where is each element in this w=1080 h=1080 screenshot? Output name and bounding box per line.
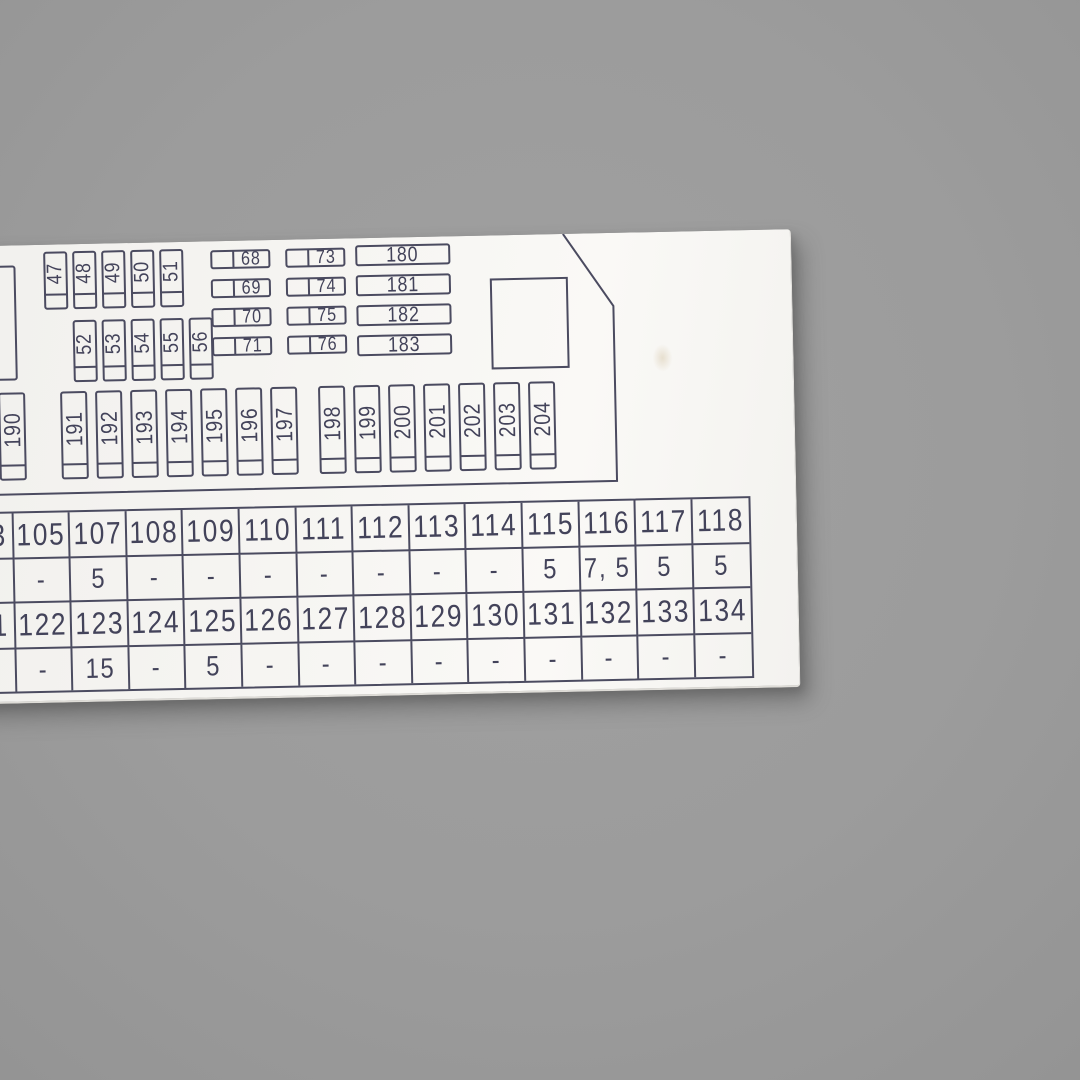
fuse-number-text: 182 [388, 302, 421, 327]
fuse-divider [238, 459, 263, 462]
fuse-number-cell: 122 [15, 602, 73, 649]
fuse-number-label: 69 [235, 280, 269, 296]
fuse-divider [162, 364, 184, 366]
fuse-number-label: 182 [358, 305, 449, 324]
cell-text: 116 [583, 505, 631, 542]
fuse-number-label: 48 [74, 253, 95, 293]
fuse-number-text: 70 [242, 306, 262, 328]
cell-text: 5 [543, 553, 559, 585]
cell-text: - [206, 560, 216, 592]
fuse-divider [104, 365, 126, 367]
fuse-number-text: 71 [243, 335, 263, 357]
cell-text: - [37, 564, 47, 596]
fuse-number-text: 203 [493, 401, 521, 437]
fuse-divider [321, 458, 346, 461]
fuse-number-text: 49 [101, 261, 125, 283]
fuse-number-text: 200 [388, 403, 416, 439]
fuse-number-label: 49 [103, 252, 124, 292]
fuse-box-50: 50 [130, 250, 155, 308]
fuse-number-label: 203 [495, 384, 519, 454]
fuse-number-cell: 118 [692, 498, 750, 545]
amperage-cell: - [184, 555, 242, 600]
fuse-number-text: 48 [72, 262, 96, 284]
fuse-divider [273, 459, 298, 462]
fuse-number-cell: 105 [13, 512, 71, 559]
cell-text: 111 [301, 511, 347, 548]
fuse-number-label: 73 [309, 250, 343, 266]
fuse-number-text: 195 [200, 407, 228, 443]
amperage-table: 3105107108109110111112113114115116117118… [0, 496, 755, 695]
amperage-cell: - [297, 552, 355, 597]
fuse-number-label: 55 [162, 320, 183, 364]
fuse-box-191: 191 [60, 391, 89, 480]
fuse-number-text: 68 [241, 248, 261, 270]
amperage-cell: - [240, 554, 298, 599]
cell-text: 128 [357, 599, 407, 636]
cell-text: 125 [188, 603, 238, 640]
amperage-cell: - [356, 641, 413, 684]
amperage-cell: 5 [637, 545, 695, 590]
fuse-number-cell: 112 [353, 505, 411, 552]
fuse-number-cell: 3 [0, 514, 14, 561]
cell-text: 109 [186, 513, 236, 550]
fuse-divider [45, 293, 67, 295]
fuse-number-label: 195 [202, 390, 226, 460]
fuse-box-55: 55 [160, 318, 185, 380]
cell-text: 127 [301, 600, 351, 637]
fuse-number-label: 183 [359, 335, 450, 354]
cell-text: 117 [639, 503, 687, 540]
cell-text: 132 [584, 595, 634, 632]
fuse-number-cell: 108 [126, 510, 184, 557]
cell-text: - [152, 651, 162, 683]
fuse-number-cell: 132 [581, 590, 639, 637]
fuse-box-47: 47 [43, 251, 68, 309]
cell-text: - [604, 642, 614, 674]
fuse-number-text: 76 [318, 333, 338, 355]
amperage-cell: - [354, 551, 412, 596]
fuse-box-70: 70 [211, 307, 271, 327]
fuse-number-text: 47 [43, 263, 67, 285]
fuse-number-label: 47 [45, 253, 66, 293]
amperage-cell: - [129, 646, 186, 689]
fuse-box-199: 199 [353, 385, 382, 474]
fuse-number-text: 190 [0, 412, 26, 448]
cell-text: 1 [0, 608, 9, 644]
fuse-number-text: 204 [528, 401, 556, 437]
fuse-divider [133, 365, 155, 367]
fuse-number-cell: 123 [72, 601, 130, 648]
fuse-box-192: 192 [95, 390, 124, 479]
cell-text: 7, 5 [584, 552, 631, 585]
fuse-number-text: 193 [130, 409, 158, 445]
fuse-number-text: 201 [423, 403, 451, 439]
fuse-number-text: 196 [235, 407, 263, 443]
fuse-divider [98, 462, 123, 465]
fuse-number-cell: 107 [70, 511, 128, 558]
fuse-divider [495, 454, 520, 457]
fuse-number-text: 55 [160, 331, 184, 353]
cell-text: 5 [656, 551, 672, 583]
fuse-box-76: 76 [287, 334, 347, 354]
fuse-number-label: 190 [0, 394, 24, 464]
cell-text: 129 [414, 598, 464, 635]
fuse-number-text: 73 [316, 246, 336, 268]
fuse-divider [530, 453, 555, 456]
fuse-diagram-area: 4748495051525354555668697071737475761801… [0, 229, 790, 247]
fuse-number-label: 68 [234, 251, 268, 267]
fuse-number-text: 54 [131, 332, 155, 354]
cell-text: - [491, 644, 501, 676]
cell-text: 118 [697, 502, 745, 539]
fuse-number-cell: 129 [411, 594, 469, 641]
fuse-box-182: 182 [356, 303, 451, 326]
fuse-number-cell: 1 [0, 604, 16, 651]
fuse-box-52: 52 [73, 320, 98, 382]
fuse-number-cell: 116 [579, 500, 637, 547]
fuse-number-text: 199 [353, 404, 381, 440]
amperage-cell: - [412, 640, 469, 683]
cell-text: 124 [131, 604, 181, 641]
amperage-cell: - [410, 550, 468, 595]
fuse-divider [133, 461, 158, 464]
fuse-number-label: 52 [75, 322, 96, 366]
cell-text: - [719, 640, 729, 672]
amperage-cell: - [299, 642, 356, 685]
cell-text: 115 [526, 506, 574, 543]
amperage-cell: 7, 5 [580, 546, 638, 591]
fuse-number-text: 191 [60, 410, 88, 446]
fuse-divider [460, 455, 485, 458]
fuse-box-75: 75 [286, 306, 346, 326]
fuse-box-73: 73 [285, 248, 345, 268]
cell-text: 5 [714, 550, 730, 582]
fuse-number-text: 50 [130, 261, 154, 283]
fuse-number-label: 50 [132, 252, 153, 292]
fuse-box-193: 193 [130, 389, 159, 478]
fuse-number-cell: 111 [296, 506, 354, 553]
fuse-box-51: 51 [159, 249, 184, 307]
amperage-cell: - [638, 635, 695, 678]
cell-text: - [378, 647, 388, 679]
fuse-divider [161, 291, 183, 293]
fuse-number-label: 193 [132, 392, 156, 462]
cell-text: - [265, 649, 275, 681]
fuse-box-56: 56 [189, 317, 214, 379]
cell-text: 5 [206, 650, 222, 682]
cell-text: 123 [75, 605, 125, 642]
cell-text: 133 [640, 593, 690, 630]
cell-text: 112 [357, 509, 405, 546]
fuse-box-180: 180 [355, 243, 450, 266]
cell-text: - [150, 561, 160, 593]
cell-text: - [489, 554, 499, 586]
cell-text: - [433, 556, 443, 588]
cell-text: - [322, 648, 332, 680]
cell-text: 126 [244, 602, 294, 639]
cell-text: 107 [73, 515, 123, 552]
fuse-number-label: 74 [310, 279, 344, 295]
fuse-number-cell: 133 [637, 589, 695, 636]
cell-text: 3 [0, 518, 8, 554]
fuse-divider [191, 363, 213, 365]
fuse-number-label: 181 [358, 275, 449, 294]
fuse-divider [103, 292, 125, 294]
fuse-number-label: 192 [97, 392, 121, 462]
partial-fuse-box-cut-left [0, 265, 18, 381]
fuse-divider [74, 293, 96, 295]
fuse-box-203: 203 [493, 382, 522, 471]
cell-text: 122 [18, 606, 68, 643]
fuse-box-54: 54 [131, 319, 156, 381]
cell-text: - [435, 646, 445, 678]
fuse-number-text: 181 [387, 272, 420, 297]
fuse-divider [75, 366, 97, 368]
fuse-number-label: 75 [310, 308, 344, 324]
fuse-number-label: 199 [355, 387, 379, 457]
fuse-number-text: 53 [102, 332, 126, 354]
cell-text: 134 [698, 592, 748, 629]
fuse-number-label: 200 [390, 386, 414, 456]
fuse-box-74: 74 [286, 277, 346, 297]
fuse-number-label: 202 [460, 385, 484, 455]
fuse-divider [355, 457, 380, 460]
fuse-number-text: 74 [317, 275, 337, 297]
cell-text: 105 [16, 516, 66, 553]
cell-text: - [320, 558, 330, 590]
fuse-divider [1, 464, 26, 467]
cell-text: - [376, 557, 386, 589]
cell-text: - [39, 654, 49, 686]
fuse-card: 4748495051525354555668697071737475761801… [0, 229, 800, 705]
fuse-box-49: 49 [101, 250, 126, 308]
fuse-box-181: 181 [356, 273, 451, 296]
amperage-cell: - [469, 639, 526, 682]
fuse-box-196: 196 [235, 387, 264, 476]
fuse-number-label: 194 [167, 391, 191, 461]
fuse-number-cell: 110 [240, 508, 298, 555]
fuse-number-label: 56 [191, 319, 212, 363]
fuse-number-label: 196 [237, 389, 261, 459]
fuse-box-201: 201 [423, 383, 452, 472]
fuse-box-183: 183 [357, 333, 452, 356]
fuse-number-text: 75 [317, 304, 337, 326]
fuse-number-label: 197 [272, 389, 296, 459]
fuse-divider [63, 463, 88, 466]
fuse-box-198: 198 [318, 386, 347, 475]
cell-text: 15 [85, 652, 116, 685]
fuse-number-text: 197 [270, 406, 298, 442]
fuse-number-label: 204 [530, 383, 554, 453]
fuse-number-cell: 128 [355, 595, 413, 642]
fuse-divider [425, 455, 450, 458]
amperage-cell: - [14, 558, 72, 603]
amperage-cell: - [467, 549, 525, 594]
fuse-box-200: 200 [388, 384, 417, 473]
cell-text: - [263, 559, 273, 591]
fuse-divider [132, 292, 154, 294]
photo-stage: 4748495051525354555668697071737475761801… [0, 0, 1080, 1080]
amperage-cell: 5 [693, 544, 751, 589]
fuse-number-label: 53 [104, 321, 125, 365]
fuse-box-204: 204 [528, 381, 557, 470]
amperage-cell: 5 [71, 557, 129, 602]
fuse-divider [390, 456, 415, 459]
amperage-cell [0, 649, 17, 692]
fuse-number-cell: 130 [468, 593, 526, 640]
fuse-number-label: 71 [236, 338, 270, 354]
amperage-cell: - [16, 648, 73, 691]
fuse-number-text: 69 [242, 277, 262, 299]
cell-text: 5 [91, 563, 107, 595]
fuse-number-cell: 127 [298, 596, 356, 643]
fuse-number-text: 202 [458, 402, 486, 438]
cell-text: 113 [413, 508, 461, 545]
fuse-number-cell: 114 [466, 503, 524, 550]
fuse-number-label: 198 [320, 388, 344, 458]
amperage-cell: 5 [523, 548, 581, 593]
amperage-cell: - [127, 556, 185, 601]
fuse-number-label: 201 [425, 385, 449, 455]
amperage-cell: - [582, 636, 639, 679]
cell-text: 131 [527, 596, 577, 633]
fuse-number-cell: 115 [522, 502, 580, 549]
fuse-box-69: 69 [211, 278, 271, 298]
cell-text: 114 [470, 507, 518, 544]
fuse-box-197: 197 [270, 387, 299, 476]
fuse-number-label: 54 [133, 321, 154, 365]
fuse-number-label: 51 [161, 251, 182, 291]
fuse-divider [203, 460, 228, 463]
fuse-number-text: 52 [73, 333, 97, 355]
fuse-number-text: 198 [318, 405, 346, 441]
fuse-number-text: 194 [165, 408, 193, 444]
fuse-number-cell: 126 [241, 598, 299, 645]
fuse-number-label: 70 [235, 309, 269, 325]
fuse-number-text: 56 [189, 331, 213, 353]
fuse-box-195: 195 [200, 388, 229, 477]
fuse-number-cell: 109 [183, 509, 241, 556]
fuse-number-cell: 131 [524, 592, 582, 639]
cell-text: 108 [129, 514, 179, 551]
fuse-number-text: 51 [159, 260, 183, 282]
fuse-number-cell: 124 [128, 600, 186, 647]
amperage-cell: - [525, 638, 582, 681]
fuse-number-cell: 117 [636, 499, 694, 546]
amperage-cell: 15 [73, 647, 130, 690]
fuse-box-71: 71 [212, 336, 272, 356]
fuse-number-text: 180 [386, 242, 419, 267]
fuse-box-202: 202 [458, 383, 487, 472]
fuse-box-53: 53 [102, 319, 127, 381]
fuse-box-68: 68 [210, 249, 270, 269]
cell-text: 110 [243, 512, 291, 549]
relay-square-box [490, 277, 570, 370]
fuse-divider [168, 461, 193, 464]
fuse-number-cell: 113 [409, 504, 467, 551]
cell-text: - [548, 643, 558, 675]
stain-mark [652, 344, 673, 372]
amperage-cell: 5 [186, 645, 243, 688]
fuse-number-text: 183 [388, 332, 421, 357]
amperage-cell: - [695, 634, 752, 677]
fuse-box-48: 48 [72, 251, 97, 309]
fuse-number-cell: 134 [694, 588, 752, 635]
fuse-number-label: 191 [62, 393, 86, 463]
amperage-cell [0, 560, 15, 605]
fuse-box-194: 194 [165, 389, 194, 478]
fuse-box-190: 190 [0, 392, 27, 481]
amperage-cell: - [242, 644, 299, 687]
cell-text: 130 [471, 597, 521, 634]
cell-text: - [661, 641, 671, 673]
fuse-number-label: 180 [357, 245, 448, 264]
fuse-number-text: 192 [95, 410, 123, 446]
fuse-number-cell: 125 [185, 599, 243, 646]
fuse-number-label: 76 [311, 337, 345, 353]
